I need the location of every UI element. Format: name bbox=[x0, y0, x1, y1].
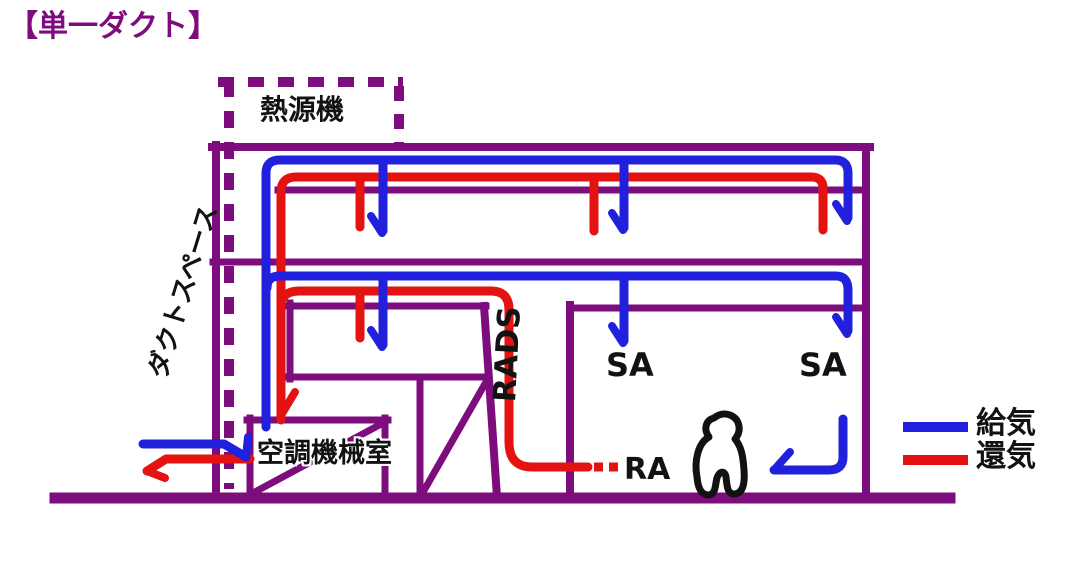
return-grille-label: RA bbox=[624, 455, 670, 485]
supply-outlet-label-1: SA bbox=[606, 349, 654, 381]
legend-swatches bbox=[903, 427, 968, 460]
legend-return-label: 還気 bbox=[976, 442, 1036, 472]
shaft-label: RADS bbox=[490, 306, 526, 403]
exhaust-arrow bbox=[147, 459, 250, 471]
diagram-page: 【単一ダクト】 熱源機 ダクトスペース RADS SA SA RA 空調機械室 … bbox=[0, 0, 1071, 561]
heat-source-label: 熱源機 bbox=[260, 96, 344, 124]
duct-diagram-canvas bbox=[0, 0, 1071, 561]
person-figure bbox=[696, 414, 744, 495]
page-title: 【単一ダクト】 bbox=[8, 12, 218, 42]
machine-room-label: 空調機械室 bbox=[257, 440, 392, 467]
supply-outlet-label-2: SA bbox=[799, 349, 847, 381]
exhaust-arrow-barb bbox=[147, 471, 165, 478]
outside-air-arrow-barb bbox=[246, 437, 248, 457]
legend-supply-label: 給気 bbox=[976, 409, 1036, 439]
stair-box-diagonal bbox=[422, 382, 486, 494]
